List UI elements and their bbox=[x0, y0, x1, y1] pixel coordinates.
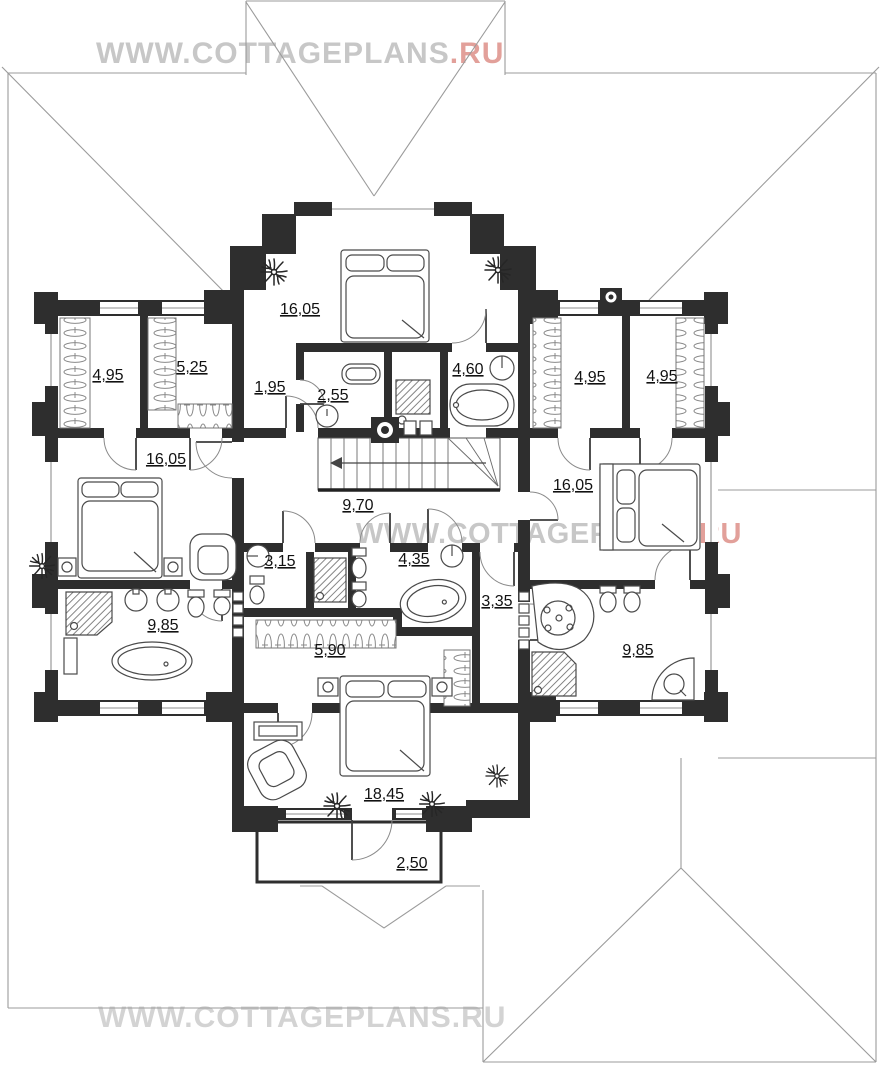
sink-icon bbox=[441, 545, 463, 567]
bidet-icon bbox=[214, 590, 230, 615]
toilet-icon bbox=[352, 548, 366, 578]
stairs bbox=[318, 438, 500, 490]
nightstand-icon bbox=[164, 558, 182, 576]
toilet-icon bbox=[188, 590, 204, 617]
room-label-wc-1: 3,15 bbox=[264, 553, 295, 570]
toilet-icon bbox=[250, 576, 264, 604]
watermark-top-suffix: .RU bbox=[450, 37, 505, 70]
nightstand-icon bbox=[432, 678, 452, 696]
room-label-bathroom-left: 9,85 bbox=[147, 617, 178, 634]
shower-icon bbox=[314, 558, 346, 602]
room-label-wardrobe-left-2: 5,25 bbox=[176, 359, 207, 376]
sink-icon bbox=[157, 589, 179, 611]
room-label-corridor: 3,35 bbox=[481, 593, 512, 610]
watermark-top: WWW.COTTAGEPLANS.RU bbox=[96, 37, 504, 70]
floor-plan-page: WWW.COTTAGEPLANS.RU WWW.COTTAGEPLANS.RU … bbox=[0, 0, 882, 1069]
room-label-bedroom-left: 16,05 bbox=[146, 451, 186, 468]
vent-icon bbox=[600, 288, 622, 306]
armchair-icon bbox=[190, 534, 236, 580]
sink-icon bbox=[316, 405, 338, 427]
floor-plan-drawing: WWW.COTTAGEPLANS.RU WWW.COTTAGEPLANS.RU … bbox=[0, 0, 882, 1069]
balcony bbox=[257, 822, 441, 882]
room-label-wardrobe-right-1: 4,95 bbox=[574, 369, 605, 386]
nightstand-icon bbox=[58, 558, 76, 576]
room-label-bedroom-right: 16,05 bbox=[553, 477, 593, 494]
bed-icon bbox=[78, 478, 162, 578]
bed-icon bbox=[341, 250, 429, 342]
room-label-wardrobe-left-1: 4,95 bbox=[92, 367, 123, 384]
wardrobe-rack-icon bbox=[533, 318, 561, 428]
room-label-stair-hall: 9,70 bbox=[342, 497, 373, 514]
bidet-icon bbox=[624, 586, 640, 612]
room-label-wardrobe-center: 5,90 bbox=[314, 642, 345, 659]
bathtub-small-icon bbox=[342, 364, 380, 384]
room-label-bedroom-top: 16,05 bbox=[280, 301, 320, 318]
room-label-bathroom-mid: 4,35 bbox=[398, 551, 429, 568]
bathtub-oval-icon bbox=[112, 642, 192, 680]
room-label-vestibule: 1,95 bbox=[254, 379, 285, 396]
shower-icon bbox=[532, 652, 576, 696]
room-label-balcony: 2,50 bbox=[396, 855, 427, 872]
room-label-wardrobe-right-2: 4,95 bbox=[646, 368, 677, 385]
bathtub-icon bbox=[450, 384, 514, 426]
watermark-bottom: WWW.COTTAGEPLANS.RU bbox=[98, 1001, 506, 1034]
shower-icon bbox=[66, 592, 112, 635]
bench-icon bbox=[64, 638, 77, 674]
room-label-bathroom-right: 9,85 bbox=[622, 642, 653, 659]
bidet-icon bbox=[352, 582, 366, 607]
tv-stand-icon bbox=[254, 722, 302, 740]
bed-icon bbox=[340, 676, 430, 776]
room-label-bedroom-bottom: 18,45 bbox=[364, 786, 404, 803]
wardrobe-rack-icon bbox=[676, 318, 704, 428]
room-label-wc-small: 2,55 bbox=[317, 387, 348, 404]
wardrobe-rack-icon bbox=[178, 404, 232, 428]
toilet-icon bbox=[600, 586, 616, 612]
sink-icon bbox=[125, 589, 147, 611]
jacuzzi-icon bbox=[532, 583, 594, 649]
watermark-bottom-text: WWW.COTTAGEPLANS.RU bbox=[98, 1001, 506, 1034]
wardrobe-rack-icon bbox=[60, 318, 90, 428]
sink-icon bbox=[490, 356, 514, 380]
nightstand-icon bbox=[318, 678, 338, 696]
wardrobe-rack-icon bbox=[148, 318, 176, 410]
room-label-bathroom-top: 4,60 bbox=[452, 361, 483, 378]
towel-radiator-icon bbox=[519, 592, 529, 649]
bed-icon bbox=[600, 464, 700, 550]
